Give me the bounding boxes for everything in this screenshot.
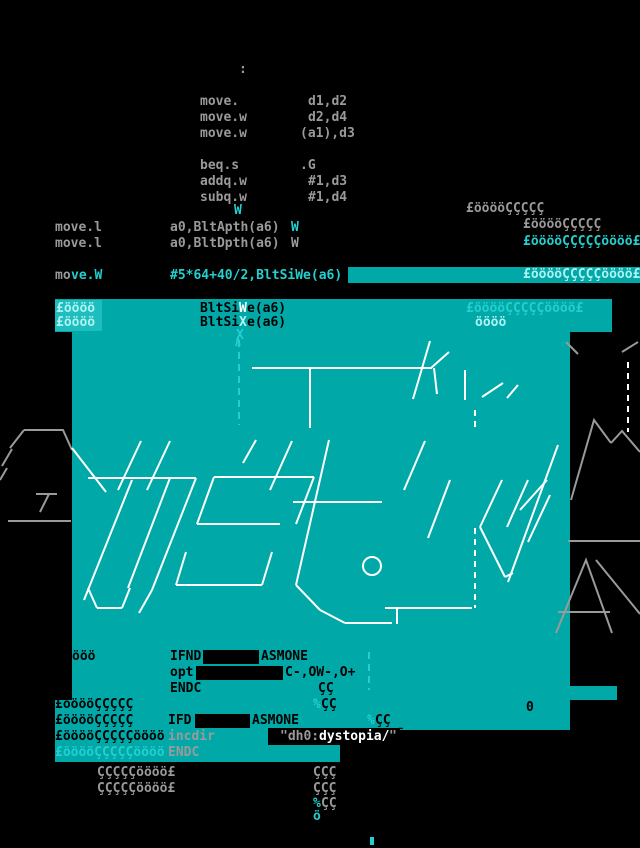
outline-art-gray [596,560,640,614]
glyph-row: £ööööÇÇÇÇÇöööö [55,746,165,759]
outline-art-gray [24,430,72,450]
asm-arg: " [389,730,397,743]
asm-op: move.l [55,221,102,234]
asm-arg: e(a6) [247,302,286,315]
glyph-row: £ööööÇÇÇÇÇöööö£ [466,302,583,315]
glyph-row: ÇÇÇÇÇöööö£ [97,782,175,795]
glyph-row: ÇÇÇ [313,766,336,779]
outline-art-gray [0,468,7,480]
label-colon: : [239,63,247,76]
asm-directive: ASMONE [252,714,299,727]
glyph-row: £ööööÇÇÇÇÇ [523,218,601,231]
glyph-row: ööö [72,650,95,663]
demo-screen: :move.d1,d2move.wd2,d4move.w(a1),d3beq.s… [0,0,640,848]
asm-arg: BltSi [200,302,239,315]
asm-arg: a0,BltApth(a6) [170,221,280,234]
glyph-row: ÇÇ [375,714,391,727]
asm-arg: BltSi [200,316,239,329]
asm-directive: ENDC [170,682,201,695]
asm-arg: C-,OW-,O+ [285,666,355,679]
asm-arg: a0,BltDpth(a6) [170,237,280,250]
outline-art-gray [2,449,12,466]
glyph-row: £ööööÇÇÇÇÇöööö£ [523,268,640,281]
glyph-row: ÇÇ [318,682,334,695]
glyph-row: ö [313,810,321,823]
glyph-row: ÇÇÇÇÇöööö£ [97,766,175,779]
glyph-row: £öööö [56,302,95,315]
stray-w: W [291,221,299,234]
asm-directive: incdir [168,730,215,743]
asm-op: move.w [200,111,247,124]
asm-arg: e(a6) [247,316,286,329]
asm-arg: dystopia/ [319,730,389,743]
ifnd-redacted-box [203,650,259,664]
asm-arg: d2,d4 [308,111,347,124]
left-black-box [55,648,72,700]
glyph-pct: % [313,698,321,711]
outline-art-gray [611,431,640,452]
glyph-zero: 0 [526,701,534,714]
glyph-row: £ööööÇÇÇÇÇ [55,714,133,727]
asm-directive: ASMONE [261,650,308,663]
glyph-row: £ööööÇÇÇÇÇöööö£ [523,235,640,248]
asm-arg: #5*64+40/2,BltSiWe(a6) [170,269,342,282]
glyph-row: £ööööÇÇÇÇÇöööö [55,730,165,743]
main-teal-block [72,332,570,655]
stray-w: W [291,237,299,250]
asm-op: addq.w [200,175,247,188]
stray-w: W [234,204,242,217]
asm-arg: .G [300,159,316,172]
glyph-macron: ¯ [397,728,405,741]
glyph-row: £öööö [56,316,95,329]
glyph-row: ÇÇÇ [313,782,336,795]
arrow-up: ∧ [234,336,242,349]
outline-art-gray [10,430,24,448]
asm-op: move.w [200,127,247,140]
asm-op: move.l [55,237,102,250]
glyph-row: £ööööÇÇÇÇÇ [466,202,544,215]
asm-arg: #1,d3 [308,175,347,188]
asm-arg: d1,d2 [308,95,347,108]
asm-op: beq.s [200,159,239,172]
asm-arg: (a1),d3 [300,127,355,140]
glyph-row: £ööööÇÇÇÇÇ [55,698,133,711]
asm-directive: ENDC [168,746,199,759]
asm-directive: opt [170,666,193,679]
stray-w: W [239,302,247,315]
ifd-redacted-box [195,714,250,728]
opt-redacted-box [196,666,283,680]
asm-directive: IFND [170,650,201,663]
asm-op: move. [200,95,239,108]
asm-op: mo [55,269,71,282]
outline-art-gray [622,342,638,352]
glyph-row: öööö [475,316,506,329]
asm-arg: "dh0: [280,730,319,743]
asm-op: ve.W [71,269,102,282]
glyph-row: ÇÇ [321,797,337,810]
asm-directive: IFD [168,714,191,727]
bottom-cyan-tick [370,837,374,845]
teal-notch-right [570,686,617,700]
glyph-pct: % [367,714,375,727]
outline-art-gray [40,494,49,512]
glyph-row: ÇÇ [321,698,337,711]
outline-art-gray [571,420,611,500]
asm-arg: #1,d4 [308,191,347,204]
